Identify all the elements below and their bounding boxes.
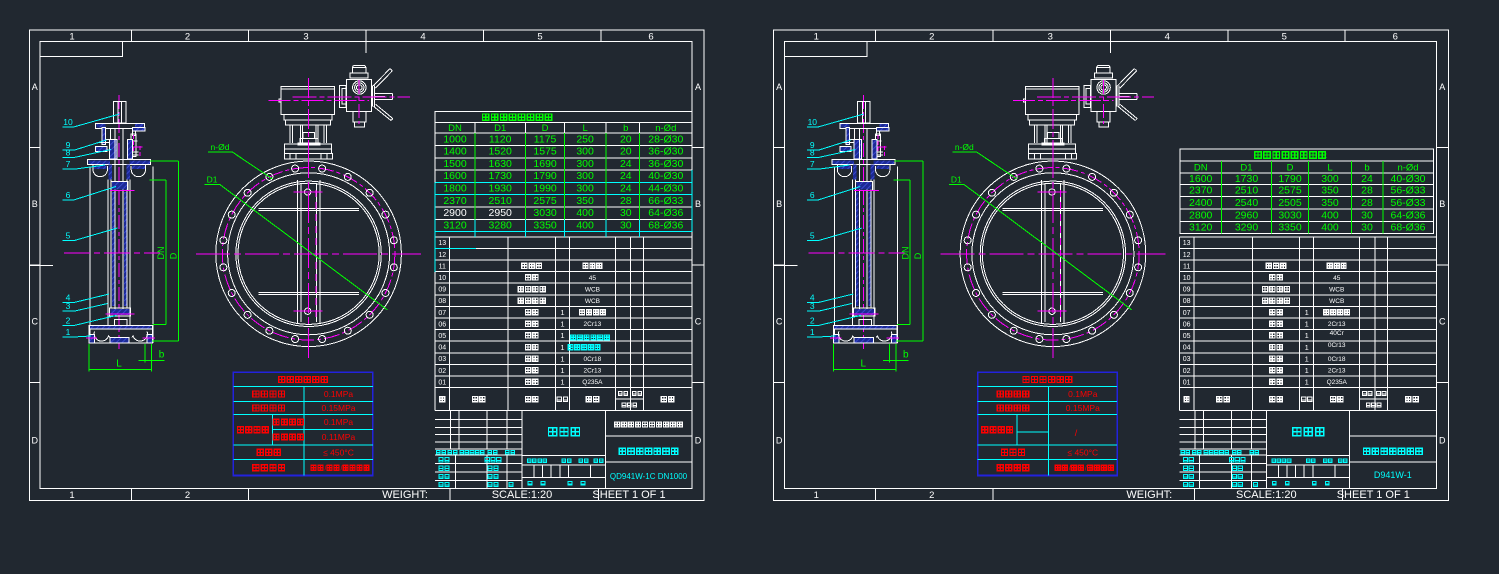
svg-text:20: 20 bbox=[620, 146, 632, 158]
svg-text:300: 300 bbox=[576, 158, 594, 170]
svg-text:36-Ø30: 36-Ø30 bbox=[648, 158, 683, 170]
svg-text:2510: 2510 bbox=[489, 195, 513, 207]
svg-text:24: 24 bbox=[1361, 173, 1373, 185]
svg-text:06: 06 bbox=[438, 321, 446, 328]
svg-text:24: 24 bbox=[620, 183, 632, 195]
svg-text:1790: 1790 bbox=[1278, 173, 1302, 185]
svg-text:68-Ø36: 68-Ø36 bbox=[648, 219, 683, 231]
svg-text:3290: 3290 bbox=[1235, 222, 1259, 234]
svg-text:L: L bbox=[116, 359, 122, 370]
svg-text:10: 10 bbox=[438, 275, 446, 282]
svg-text:2Cr13: 2Cr13 bbox=[584, 321, 602, 328]
svg-text:350: 350 bbox=[576, 195, 594, 207]
svg-text:QD941W-1C DN1000: QD941W-1C DN1000 bbox=[610, 472, 688, 481]
svg-text:1730: 1730 bbox=[1235, 173, 1259, 185]
svg-text:D1: D1 bbox=[207, 175, 218, 185]
svg-text:1930: 1930 bbox=[489, 183, 513, 195]
svg-text:7: 7 bbox=[66, 159, 71, 169]
svg-text:28-Ø30: 28-Ø30 bbox=[648, 133, 683, 145]
svg-text:1575: 1575 bbox=[533, 146, 557, 158]
svg-text:1690: 1690 bbox=[533, 158, 557, 170]
svg-text:2900: 2900 bbox=[443, 207, 467, 219]
svg-text:0Cr13: 0Cr13 bbox=[1328, 342, 1346, 349]
svg-text:45: 45 bbox=[589, 275, 597, 282]
svg-text:8: 8 bbox=[66, 147, 71, 157]
svg-text:28: 28 bbox=[620, 195, 632, 207]
svg-text:56-Ø33: 56-Ø33 bbox=[1390, 197, 1425, 209]
svg-text:b: b bbox=[1364, 162, 1369, 173]
svg-text:DN: DN bbox=[156, 247, 166, 260]
svg-text:2960: 2960 bbox=[1235, 209, 1259, 221]
svg-text:01: 01 bbox=[438, 379, 446, 386]
svg-text:350: 350 bbox=[1321, 197, 1339, 209]
svg-text:C: C bbox=[32, 317, 39, 327]
svg-text:A: A bbox=[32, 82, 38, 92]
svg-text:1: 1 bbox=[66, 327, 71, 337]
svg-text:20: 20 bbox=[620, 133, 632, 145]
svg-text:1: 1 bbox=[560, 308, 564, 317]
svg-text:1: 1 bbox=[69, 31, 74, 42]
svg-text:D: D bbox=[32, 436, 39, 446]
svg-text:1790: 1790 bbox=[533, 170, 557, 182]
svg-text:64-Ø36: 64-Ø36 bbox=[1390, 209, 1425, 221]
svg-text:WCB: WCB bbox=[585, 286, 600, 293]
svg-text:02: 02 bbox=[438, 368, 446, 375]
svg-text:D941W-1: D941W-1 bbox=[1374, 470, 1412, 480]
svg-text:1730: 1730 bbox=[489, 170, 513, 182]
svg-text:300: 300 bbox=[1321, 173, 1339, 185]
svg-text:300: 300 bbox=[576, 170, 594, 182]
svg-text:DN: DN bbox=[1194, 162, 1208, 173]
svg-text:3280: 3280 bbox=[489, 219, 513, 231]
svg-text:D: D bbox=[169, 252, 179, 259]
svg-text:1: 1 bbox=[560, 343, 564, 352]
svg-text:1000: 1000 bbox=[443, 133, 467, 145]
svg-text:3: 3 bbox=[303, 31, 308, 42]
svg-text:B: B bbox=[695, 199, 701, 209]
svg-text:3120: 3120 bbox=[443, 219, 467, 231]
svg-text:5: 5 bbox=[537, 31, 542, 42]
svg-text:1: 1 bbox=[69, 490, 74, 501]
svg-text:400: 400 bbox=[1321, 222, 1339, 234]
svg-text:1400: 1400 bbox=[443, 146, 467, 158]
svg-text:40-Ø30: 40-Ø30 bbox=[1390, 173, 1425, 185]
svg-text:5: 5 bbox=[66, 231, 71, 241]
svg-text:1: 1 bbox=[560, 320, 564, 329]
svg-text:2575: 2575 bbox=[1278, 185, 1302, 197]
svg-text:D1: D1 bbox=[1240, 162, 1252, 173]
svg-text:68-Ø36: 68-Ø36 bbox=[1390, 222, 1425, 234]
svg-text:10: 10 bbox=[63, 117, 73, 127]
svg-text:1990: 1990 bbox=[533, 183, 557, 195]
svg-text:03: 03 bbox=[438, 356, 446, 363]
svg-text:D: D bbox=[1287, 162, 1294, 173]
svg-text:04: 04 bbox=[438, 345, 446, 352]
svg-text:2540: 2540 bbox=[1235, 197, 1259, 209]
svg-text:0Cr18: 0Cr18 bbox=[584, 356, 602, 363]
svg-text:07: 07 bbox=[438, 310, 446, 317]
svg-text:3350: 3350 bbox=[533, 219, 557, 231]
svg-text::: : bbox=[551, 113, 553, 122]
svg-text:2400: 2400 bbox=[1189, 197, 1213, 209]
svg-text:12: 12 bbox=[438, 252, 446, 259]
svg-text:3: 3 bbox=[66, 301, 71, 311]
svg-text:400: 400 bbox=[1321, 209, 1339, 221]
svg-text:3030: 3030 bbox=[1278, 209, 1302, 221]
svg-text:2575: 2575 bbox=[533, 195, 557, 207]
svg-text:SCALE:1:20: SCALE:1:20 bbox=[492, 489, 553, 501]
svg-text:D: D bbox=[695, 436, 702, 446]
svg-text:400: 400 bbox=[576, 219, 594, 231]
svg-text::: : bbox=[1325, 151, 1327, 160]
svg-text:2950: 2950 bbox=[489, 207, 513, 219]
svg-text:n-Ød: n-Ød bbox=[211, 142, 230, 152]
svg-text:b: b bbox=[159, 350, 165, 361]
svg-text:56-Ø33: 56-Ø33 bbox=[1390, 185, 1425, 197]
svg-text:n-Ød: n-Ød bbox=[1397, 162, 1418, 173]
svg-text:0.1MPa: 0.1MPa bbox=[324, 417, 354, 427]
svg-text:24: 24 bbox=[620, 170, 632, 182]
svg-text:64-Ø36: 64-Ø36 bbox=[648, 207, 683, 219]
svg-text:11: 11 bbox=[439, 263, 446, 270]
svg-text:6: 6 bbox=[66, 190, 71, 200]
svg-text:3120: 3120 bbox=[1189, 222, 1213, 234]
svg-text:1600: 1600 bbox=[443, 170, 467, 182]
svg-text:SHEET 1 OF 1: SHEET 1 OF 1 bbox=[592, 489, 665, 501]
svg-text:1800: 1800 bbox=[443, 183, 467, 195]
svg-text:36-Ø30: 36-Ø30 bbox=[648, 146, 683, 158]
svg-text:66-Ø33: 66-Ø33 bbox=[648, 195, 683, 207]
svg-text:1630: 1630 bbox=[489, 158, 513, 170]
svg-text:1120: 1120 bbox=[489, 133, 512, 145]
svg-text:40-Ø30: 40-Ø30 bbox=[648, 170, 683, 182]
svg-text:2370: 2370 bbox=[443, 195, 467, 207]
svg-text:4: 4 bbox=[420, 31, 425, 42]
svg-text:/: / bbox=[341, 465, 343, 472]
svg-text:44-Ø30: 44-Ø30 bbox=[648, 183, 683, 195]
svg-text:1500: 1500 bbox=[443, 158, 467, 170]
svg-text:350: 350 bbox=[1321, 185, 1339, 197]
svg-text:400: 400 bbox=[576, 207, 594, 219]
svg-text:300: 300 bbox=[576, 146, 594, 158]
svg-text:13: 13 bbox=[438, 240, 446, 247]
svg-text:250: 250 bbox=[576, 133, 594, 145]
svg-text:30: 30 bbox=[620, 207, 632, 219]
svg-text:1520: 1520 bbox=[489, 146, 513, 158]
svg-text:2: 2 bbox=[185, 490, 190, 501]
svg-text:L: L bbox=[1327, 162, 1332, 173]
svg-text:2: 2 bbox=[185, 31, 190, 42]
svg-text:6: 6 bbox=[648, 31, 653, 42]
svg-text:1: 1 bbox=[560, 331, 564, 340]
svg-text:2800: 2800 bbox=[1189, 209, 1213, 221]
svg-text:3030: 3030 bbox=[533, 207, 557, 219]
svg-text:28: 28 bbox=[1361, 185, 1373, 197]
svg-text:≤ 450°C: ≤ 450°C bbox=[323, 448, 354, 458]
svg-text:1600: 1600 bbox=[1189, 173, 1213, 185]
svg-text:40Cr: 40Cr bbox=[1330, 330, 1345, 337]
svg-text:1: 1 bbox=[560, 378, 564, 387]
svg-text:Q235A: Q235A bbox=[582, 379, 603, 386]
svg-text:24: 24 bbox=[620, 158, 632, 170]
svg-text:B: B bbox=[32, 199, 38, 209]
svg-text:/: / bbox=[325, 465, 327, 472]
svg-text:30: 30 bbox=[1361, 209, 1373, 221]
svg-text:2510: 2510 bbox=[1235, 185, 1259, 197]
svg-text:2: 2 bbox=[66, 315, 71, 325]
svg-text:1: 1 bbox=[560, 354, 564, 363]
svg-text:0.11MPa: 0.11MPa bbox=[322, 432, 356, 442]
svg-text:0.1MPa: 0.1MPa bbox=[324, 389, 354, 399]
svg-text:30: 30 bbox=[1361, 222, 1373, 234]
svg-text:3350: 3350 bbox=[1278, 222, 1302, 234]
svg-text:WCB: WCB bbox=[585, 298, 600, 305]
svg-text:A: A bbox=[695, 82, 701, 92]
svg-text:05: 05 bbox=[438, 333, 446, 340]
svg-text:30: 30 bbox=[620, 219, 632, 231]
svg-text:0.15MPa: 0.15MPa bbox=[321, 403, 355, 413]
svg-text:28: 28 bbox=[1361, 197, 1373, 209]
svg-text:2370: 2370 bbox=[1189, 185, 1213, 197]
svg-text:2Cr13: 2Cr13 bbox=[584, 368, 602, 375]
svg-text:1: 1 bbox=[560, 366, 564, 375]
svg-text:09: 09 bbox=[438, 287, 446, 294]
svg-text:08: 08 bbox=[438, 298, 446, 305]
svg-text:2505: 2505 bbox=[1278, 197, 1302, 209]
svg-text:1175: 1175 bbox=[534, 133, 557, 145]
svg-text:300: 300 bbox=[576, 183, 594, 195]
svg-text:WEIGHT:: WEIGHT: bbox=[382, 489, 428, 501]
svg-text:C: C bbox=[695, 317, 702, 327]
